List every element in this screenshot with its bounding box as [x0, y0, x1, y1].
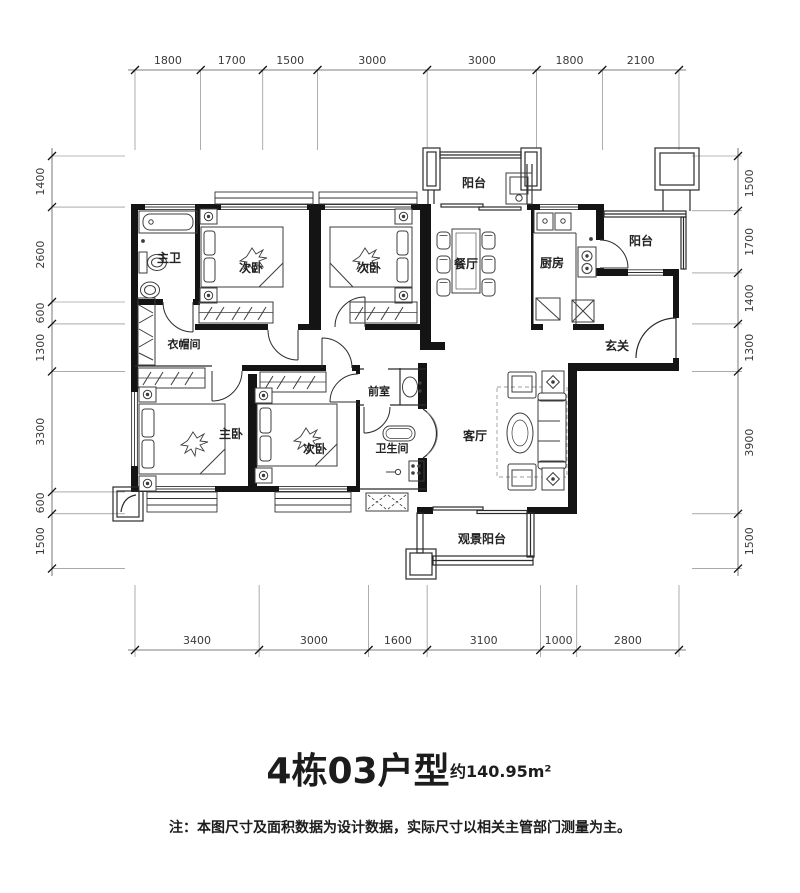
dim-left-3: 1300 — [34, 334, 47, 362]
dim-top-3: 3000 — [358, 54, 386, 67]
room-label-kitchen: 厨房 — [540, 255, 564, 270]
dim-left-5: 600 — [34, 492, 47, 513]
room-label-foyer: 玄关 — [605, 338, 629, 353]
room-label-bathroom: 卫生间 — [376, 441, 409, 455]
wardrobe-icon — [138, 368, 205, 388]
wardrobe-icon — [199, 302, 273, 323]
dim-top-6: 2100 — [627, 54, 655, 67]
stove-icon — [578, 247, 596, 277]
walls-layer — [131, 204, 679, 514]
dim-bottom-1: 3000 — [300, 634, 328, 647]
room-label-view-balcony: 观景阳台 — [458, 531, 506, 546]
dim-bottom-3: 3100 — [470, 634, 498, 647]
dim-left-2: 600 — [34, 303, 47, 324]
dim-bottom-4: 1000 — [545, 634, 573, 647]
basin-icon — [141, 282, 160, 298]
dimension-layer — [48, 66, 742, 657]
dim-right-4: 3900 — [743, 429, 756, 457]
dim-right-5: 1500 — [743, 527, 756, 555]
dimension-labels: 1800 1700 1500 3000 3000 1800 2100 3400 … — [34, 54, 756, 647]
furniture-layer — [138, 173, 596, 511]
disclaimer-note: 注：本图尺寸及面积数据为设计数据，实际尺寸以相关主管部门测量为主。 — [169, 819, 631, 836]
bathtub-icon — [383, 426, 415, 441]
dim-left-0: 1400 — [34, 168, 47, 196]
fridge-icon — [572, 300, 594, 322]
cabinet-icon — [536, 298, 560, 320]
dim-right-1: 1700 — [743, 228, 756, 256]
dim-left-1: 2600 — [34, 241, 47, 269]
unit-title: 4栋03户型 — [266, 751, 449, 792]
wardrobe-icon — [350, 302, 417, 323]
room-label-balcony-right: 阳台 — [629, 233, 653, 248]
bed-icon — [200, 209, 283, 303]
bed-icon — [330, 209, 412, 303]
dim-right-2: 1400 — [743, 284, 756, 312]
coffee-table-icon — [507, 413, 533, 453]
room-label-balcony-top: 阳台 — [462, 175, 486, 190]
room-label-anteroom: 前室 — [368, 384, 390, 398]
dim-top-0: 1800 — [154, 54, 182, 67]
unit-area: 约140.95m² — [450, 762, 551, 781]
dim-bottom-5: 2800 — [614, 634, 642, 647]
dim-top-5: 1800 — [556, 54, 584, 67]
dim-bottom-0: 3400 — [183, 634, 211, 647]
floorplan-page: 1800 1700 1500 3000 3000 1800 2100 3400 … — [0, 0, 800, 893]
room-label-bedroom-tm: 次卧 — [357, 260, 381, 275]
room-label-master-bath: 主卫 — [157, 250, 181, 265]
bed-icon — [139, 387, 225, 491]
dim-right-3: 1300 — [743, 334, 756, 362]
dim-right-0: 1500 — [743, 169, 756, 197]
dim-left-6: 1500 — [34, 527, 47, 555]
dim-top-2: 1500 — [276, 54, 304, 67]
room-label-cloakroom: 衣帽间 — [168, 337, 201, 351]
dim-left-4: 3300 — [34, 418, 47, 446]
room-label-bedroom-tl: 次卧 — [239, 260, 263, 275]
room-label-living: 客厅 — [462, 428, 487, 443]
sofa-icon — [508, 371, 566, 490]
floorplan-drawing: 1800 1700 1500 3000 3000 1800 2100 3400 … — [0, 0, 800, 893]
room-label-master-bed: 主卧 — [219, 426, 243, 441]
bed-icon — [255, 388, 337, 483]
title-block: 4栋03户型 约140.95m² 注：本图尺寸及面积数据为设计数据，实际尺寸以相… — [169, 751, 631, 836]
cloakroom-rack-icon — [138, 298, 155, 365]
room-label-bedroom-b: 次卧 — [303, 441, 327, 456]
ac-platform-icon — [366, 493, 408, 511]
bathtub-icon — [139, 211, 197, 242]
dim-bottom-2: 1600 — [384, 634, 412, 647]
room-label-dining: 餐厅 — [454, 256, 478, 271]
dim-top-1: 1700 — [218, 54, 246, 67]
floor-drain-icon — [386, 469, 401, 474]
water-heater-icon — [506, 173, 532, 204]
dim-top-4: 3000 — [468, 54, 496, 67]
